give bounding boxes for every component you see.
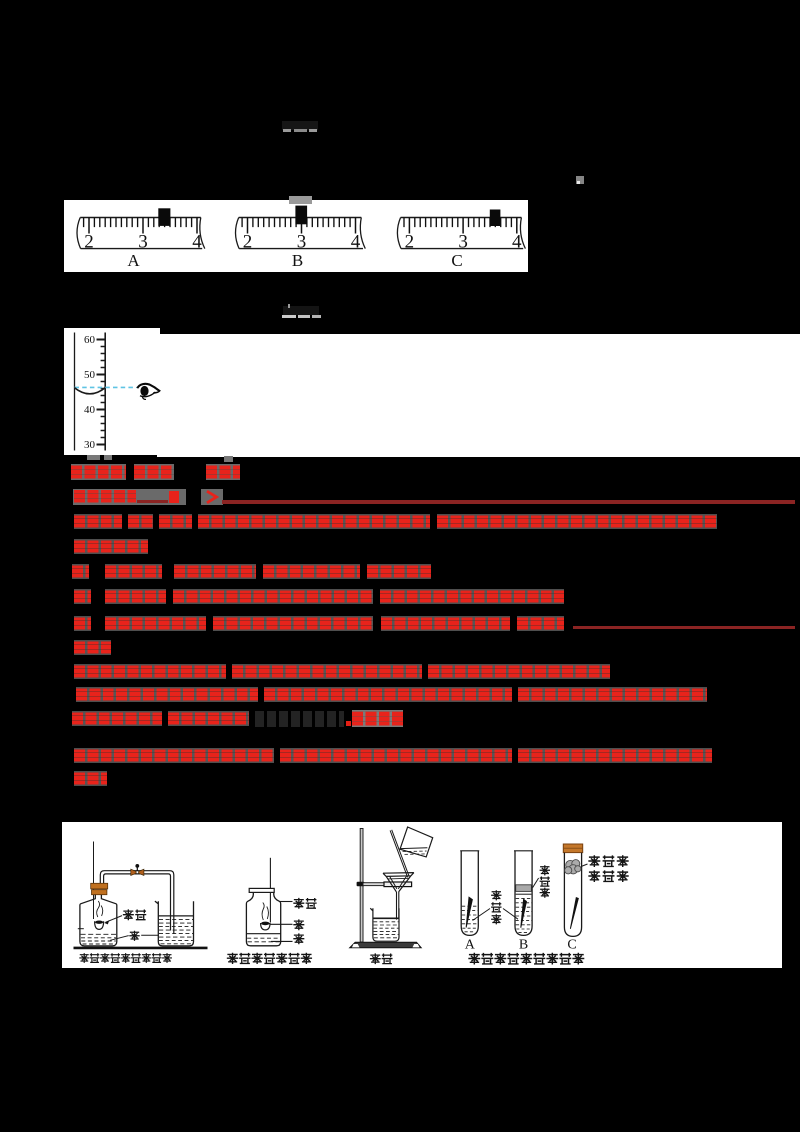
svg-text:A: A [127,251,140,270]
svg-text:C: C [567,937,576,952]
svg-text:40: 40 [84,404,96,416]
svg-text:C: C [451,251,462,270]
svg-text:2: 2 [243,232,253,253]
svg-text:60: 60 [84,334,96,346]
svg-text:4: 4 [512,232,522,253]
svg-text:30: 30 [84,439,96,451]
svg-text:4: 4 [192,232,202,253]
svg-text:2: 2 [84,232,94,253]
svg-text:3: 3 [297,232,307,253]
svg-text:50: 50 [84,369,96,381]
svg-text:4: 4 [351,232,361,253]
svg-text:B: B [519,937,528,952]
svg-text:A: A [465,937,476,952]
svg-text:B: B [292,251,303,270]
svg-text:3: 3 [458,232,468,253]
svg-text:2: 2 [405,232,415,253]
svg-text:3: 3 [138,232,148,253]
